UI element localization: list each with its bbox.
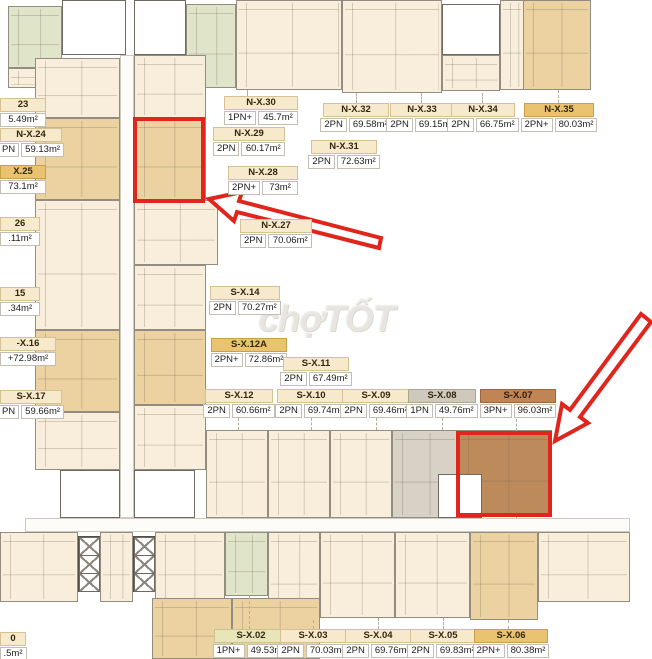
- unit-block: [134, 265, 206, 330]
- unit-label: 0.5m²: [0, 632, 26, 659]
- unit-label-name: S-X.10: [277, 389, 345, 403]
- unit-block: [134, 55, 206, 118]
- unit-label-values: 2PN67.49m²: [283, 372, 349, 386]
- unit-label: X.2573.1m²: [0, 165, 46, 194]
- unit-label-name: S-X.05: [410, 629, 476, 643]
- leader-line: [558, 90, 559, 103]
- unit-label: S-X.062PN+80.38m²: [474, 629, 548, 658]
- unit-label: S-X.081PN49.76m²: [408, 389, 476, 418]
- unit-label: N-X.322PN69.58m²: [323, 103, 389, 132]
- unit-label-values: 2PN72.63m²: [311, 155, 377, 169]
- unit-area: 80.03m²: [555, 118, 598, 132]
- unit-label: 15.34m²: [0, 287, 40, 316]
- callout-arrow-2: [555, 314, 651, 441]
- unit-bedroom-type: 2PN: [340, 404, 366, 418]
- unit-block: [134, 200, 218, 265]
- unit-bedroom-type: 2PN+: [473, 644, 505, 658]
- unit-bedroom-type: 2PN: [342, 644, 368, 658]
- unit-label-name: 26: [0, 217, 40, 231]
- unit-block: [236, 0, 342, 90]
- shaft-x-icon: [134, 555, 155, 574]
- unit-area: 67.49m²: [309, 372, 352, 386]
- unit-label: S-X.122PN60.66m²: [205, 389, 273, 418]
- unit-label-values: 2PN70.27m²: [210, 301, 280, 315]
- unit-bedroom-type: 2PN: [407, 644, 433, 658]
- unit-area: 59.66m²: [21, 405, 64, 419]
- unit-label-name: S-X.04: [345, 629, 411, 643]
- unit-block: [35, 200, 120, 330]
- leader-line: [249, 596, 250, 629]
- unit-area: 96.03m²: [514, 404, 557, 418]
- core-block: [60, 470, 120, 518]
- unit-block: [470, 532, 538, 620]
- unit-bedroom-type: PN: [0, 143, 19, 157]
- unit-area: 72.63m²: [337, 155, 380, 169]
- unit-label: N-X.282PN+73m²: [228, 166, 298, 195]
- unit-block: [330, 430, 392, 518]
- unit-label-values: 2PN60.17m²: [213, 142, 285, 156]
- highlight-box-1: [133, 117, 205, 203]
- unit-label-values: .11m²: [0, 232, 40, 246]
- unit-label: -X.16+72.98m²: [0, 337, 56, 366]
- shaft-x-icon: [79, 573, 100, 592]
- unit-label-values: 2PN69.58m²: [323, 118, 389, 132]
- unit-label-values: +72.98m²: [0, 352, 56, 366]
- unit-label-values: PN59.66m²: [0, 405, 62, 419]
- unit-block: [35, 58, 120, 118]
- unit-label-values: 2PN70.03m²: [280, 644, 346, 658]
- unit-bedroom-type: 1PN+: [224, 111, 256, 125]
- shaft-x-icon: [79, 555, 100, 574]
- unit-label-name: N-X.31: [311, 140, 377, 154]
- unit-label-name: N-X.32: [323, 103, 389, 117]
- unit-bedroom-type: 1PN: [406, 404, 432, 418]
- unit-label-values: 2PN69.83m²: [410, 644, 476, 658]
- unit-area: .11m²: [0, 232, 40, 246]
- unit-area: 59.13m²: [21, 143, 64, 157]
- unit-label-name: S-X.12: [205, 389, 273, 403]
- unit-block: [100, 532, 133, 602]
- unit-bedroom-type: 2PN: [240, 234, 266, 248]
- unit-label-values: 2PN69.76m²: [345, 644, 411, 658]
- unit-label-name: S-X.06: [474, 629, 548, 643]
- unit-block: [225, 532, 268, 596]
- unit-label-name: S-X.17: [0, 390, 62, 404]
- unit-area: 69.58m²: [349, 118, 392, 132]
- unit-label-name: N-X.30: [224, 96, 298, 110]
- unit-block: [0, 532, 78, 602]
- leader-line: [508, 620, 509, 629]
- unit-label-name: N-X.24: [0, 128, 62, 142]
- shaft-x-icon: [79, 537, 100, 556]
- unit-label: 235.49m²: [0, 98, 46, 127]
- unit-label-name: -X.16: [0, 337, 56, 351]
- unit-bedroom-type: 2PN+: [521, 118, 553, 132]
- unit-bedroom-type: 2PN: [209, 301, 235, 315]
- unit-area: 60.66m²: [232, 404, 275, 418]
- unit-area: 72.86m²: [245, 353, 288, 367]
- elevator-shaft: [133, 536, 155, 592]
- elevator-shaft: [78, 536, 100, 592]
- unit-label-name: 0: [0, 632, 26, 646]
- unit-label-values: 73.1m²: [0, 180, 46, 194]
- unit-label: S-X.142PN70.27m²: [210, 286, 280, 315]
- unit-bedroom-type: 2PN+: [228, 181, 260, 195]
- unit-label-name: S-X.03: [280, 629, 346, 643]
- leader-line: [442, 418, 443, 430]
- unit-area: 73m²: [262, 181, 298, 195]
- unit-label-values: 2PN+80.03m²: [524, 118, 594, 132]
- unit-bedroom-type: 2PN: [308, 155, 334, 169]
- unit-area: .5m²: [0, 647, 27, 659]
- unit-label-name: N-X.35: [524, 103, 594, 117]
- unit-label-values: 2PN69.74m²: [277, 404, 345, 418]
- unit-label-values: 5.49m²: [0, 113, 46, 127]
- unit-block: [523, 0, 591, 90]
- unit-label-values: .5m²: [0, 647, 26, 659]
- unit-label: S-X.032PN70.03m²: [280, 629, 346, 658]
- unit-label-name: S-X.07: [480, 389, 556, 403]
- unit-label-values: 2PN66.75m²: [451, 118, 515, 132]
- unit-block: [155, 532, 225, 602]
- unit-area: .34m²: [0, 302, 40, 316]
- unit-block: [442, 55, 500, 91]
- unit-label: N-X.301PN+45.7m²: [224, 96, 298, 125]
- unit-label-name: S-X.12A: [211, 338, 287, 352]
- unit-label: N-X.352PN+80.03m²: [524, 103, 594, 132]
- highlight-box-2: [456, 431, 552, 517]
- unit-label-values: 2PN+72.86m²: [211, 353, 287, 367]
- unit-label-name: 15: [0, 287, 40, 301]
- unit-label: S-X.092PN69.46m²: [342, 389, 410, 418]
- unit-area: 60.17m²: [241, 142, 285, 156]
- leader-line: [516, 419, 517, 431]
- unit-bedroom-type: 2PN: [386, 118, 412, 132]
- unit-label: S-X.042PN69.76m²: [345, 629, 411, 658]
- unit-area: 49.76m²: [435, 404, 478, 418]
- unit-label: N-X.312PN72.63m²: [311, 140, 377, 169]
- unit-label: S-X.102PN69.74m²: [277, 389, 345, 418]
- corridor: [120, 55, 134, 518]
- corridor: [25, 518, 630, 532]
- unit-label: N-X.342PN66.75m²: [451, 103, 515, 132]
- leader-line: [421, 93, 422, 103]
- unit-label-values: 2PN69.46m²: [342, 404, 410, 418]
- unit-area: +72.98m²: [0, 352, 56, 366]
- unit-area: 70.06m²: [268, 234, 312, 248]
- unit-block: [342, 0, 442, 93]
- unit-area: 70.27m²: [238, 301, 281, 315]
- unit-bedroom-type: 2PN: [275, 404, 301, 418]
- unit-label-name: N-X.29: [213, 127, 285, 141]
- unit-label-values: 2PN70.06m²: [240, 234, 312, 248]
- unit-label-values: 1PN+45.7m²: [224, 111, 298, 125]
- unit-block: [35, 412, 120, 470]
- unit-area: 80.38m²: [507, 644, 550, 658]
- unit-bedroom-type: 2PN: [447, 118, 473, 132]
- unit-bedroom-type: 2PN: [203, 404, 229, 418]
- unit-label-name: S-X.09: [342, 389, 410, 403]
- unit-label-values: .34m²: [0, 302, 40, 316]
- unit-label-name: N-X.27: [240, 219, 312, 233]
- unit-area: 66.75m²: [476, 118, 519, 132]
- unit-bedroom-type: 2PN: [320, 118, 346, 132]
- leader-line: [238, 418, 239, 430]
- shaft-x-icon: [134, 573, 155, 592]
- leader-line: [311, 418, 312, 430]
- core-block: [134, 470, 195, 518]
- unit-block: [500, 0, 524, 90]
- leader-line: [443, 618, 444, 629]
- leader-line: [376, 418, 377, 430]
- unit-bedroom-type: 2PN: [277, 644, 303, 658]
- unit-label: N-X.332PN69.15m²: [390, 103, 454, 132]
- unit-label: S-X.112PN67.49m²: [283, 357, 349, 386]
- unit-label: S-X.12A2PN+72.86m²: [211, 338, 287, 367]
- unit-area: 69.46m²: [369, 404, 412, 418]
- unit-label-name: N-X.33: [390, 103, 454, 117]
- unit-label-name: 23: [0, 98, 46, 112]
- unit-area: 73.1m²: [0, 180, 46, 194]
- floor-plan: chợTỐT N-X.301PN+45.7m²N-X.292PN60.17m²N…: [0, 0, 652, 659]
- core-block: [442, 4, 500, 55]
- unit-label-name: N-X.28: [228, 166, 298, 180]
- unit-block: [206, 430, 268, 518]
- leader-line: [313, 620, 314, 629]
- shaft-x-icon: [134, 537, 155, 556]
- core-block: [134, 0, 186, 55]
- unit-label-values: 2PN+80.38m²: [474, 644, 548, 658]
- unit-label: N-X.292PN60.17m²: [213, 127, 285, 156]
- unit-label-values: 2PN69.15m²: [390, 118, 454, 132]
- unit-bedroom-type: PN: [0, 405, 19, 419]
- unit-label: N-X.24PN59.13m²: [0, 128, 62, 157]
- unit-label-name: S-X.14: [210, 286, 280, 300]
- unit-label-values: 2PN+73m²: [228, 181, 298, 195]
- unit-label-name: S-X.08: [408, 389, 476, 403]
- leader-line: [378, 618, 379, 629]
- unit-label-values: 2PN60.66m²: [205, 404, 273, 418]
- core-block: [62, 0, 126, 55]
- unit-block: [134, 405, 206, 470]
- unit-label: N-X.272PN70.06m²: [240, 219, 312, 248]
- unit-bedroom-type: 2PN: [213, 142, 239, 156]
- unit-bedroom-type: 2PN+: [211, 353, 243, 367]
- unit-block: [538, 532, 630, 602]
- unit-block: [395, 532, 470, 618]
- unit-label-name: S-X.11: [283, 357, 349, 371]
- unit-label: S-X.17PN59.66m²: [0, 390, 62, 419]
- unit-bedroom-type: 3PN+: [480, 404, 512, 418]
- unit-label: S-X.052PN69.83m²: [410, 629, 476, 658]
- unit-block: [320, 532, 395, 618]
- unit-label-name: S-X.02: [214, 629, 288, 643]
- unit-block: [134, 330, 206, 405]
- unit-block: [268, 430, 330, 518]
- unit-area: 5.49m²: [0, 113, 46, 127]
- unit-label: 26.11m²: [0, 217, 40, 246]
- leader-line: [356, 93, 357, 103]
- unit-label-values: PN59.13m²: [0, 143, 62, 157]
- unit-label-name: X.25: [0, 165, 46, 179]
- unit-label-values: 1PN49.76m²: [408, 404, 476, 418]
- unit-bedroom-type: 1PN+: [213, 644, 245, 658]
- unit-area: 45.7m²: [258, 111, 298, 125]
- unit-label: S-X.073PN+96.03m²: [480, 389, 556, 418]
- leader-line: [482, 93, 483, 103]
- unit-label-values: 3PN+96.03m²: [480, 404, 556, 418]
- unit-bedroom-type: 2PN: [280, 372, 306, 386]
- unit-label-name: N-X.34: [451, 103, 515, 117]
